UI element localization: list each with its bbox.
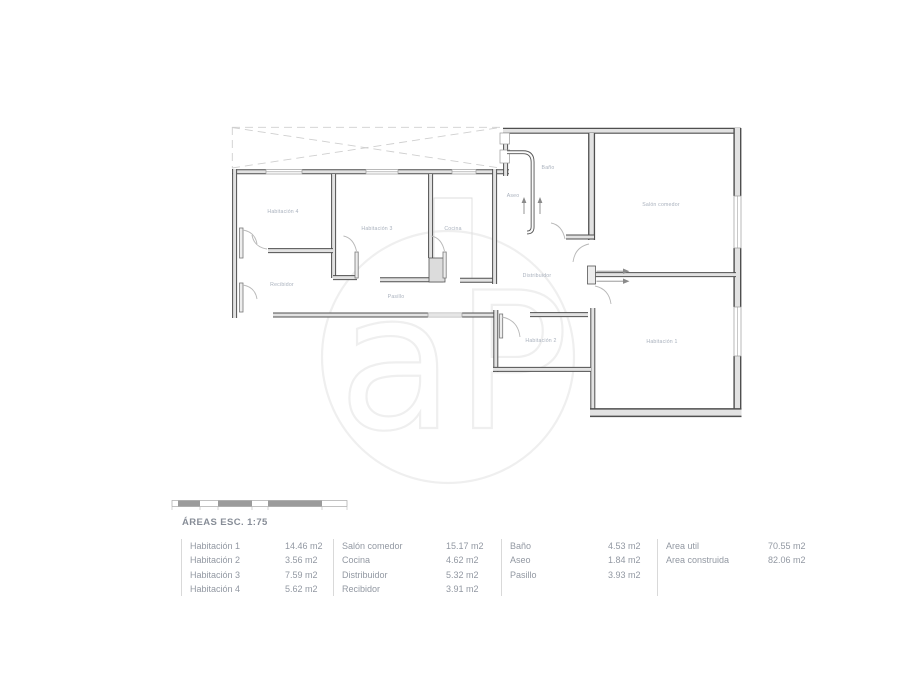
- legend-room-name: Recibidor: [342, 584, 446, 594]
- legend-group-2: Salón comedor15.17 m2Cocina4.62 m2Distri…: [333, 539, 501, 596]
- legend-room-area: 4.62 m2: [446, 555, 479, 565]
- legend-room-name: Habitación 4: [190, 584, 285, 594]
- legend-room-name: Area util: [666, 541, 768, 551]
- legend-room-area: 3.93 m2: [608, 570, 641, 580]
- legend-room-name: Aseo: [510, 555, 608, 565]
- room-label-habitacion-2: Habitación 2: [525, 338, 556, 344]
- legend-row: Baño4.53 m2: [510, 539, 657, 553]
- room-label-bano: Baño: [542, 165, 555, 171]
- legend-row: Area util70.55 m2: [666, 539, 819, 553]
- legend-row: Recibidor3.91 m2: [342, 582, 501, 596]
- legend-row: Habitación 45.62 m2: [190, 582, 333, 596]
- legend-room-name: Salón comedor: [342, 541, 446, 551]
- legend-room-name: Distribuidor: [342, 570, 446, 580]
- room-label-salon-comedor: Salón comedor: [642, 202, 680, 208]
- legend-row: Distribuidor5.32 m2: [342, 568, 501, 582]
- legend-room-name: Pasillo: [510, 570, 608, 580]
- watermark-text: aP: [338, 252, 569, 473]
- legend-group-1: Habitación 114.46 m2Habitación 23.56 m2H…: [181, 539, 333, 596]
- legend-room-area: 7.59 m2: [285, 570, 318, 580]
- room-label-habitacion-4: Habitación 4: [267, 209, 298, 215]
- legend-room-name: Habitación 1: [190, 541, 285, 551]
- legend-row: Area construida82.06 m2: [666, 553, 819, 567]
- legend-room-area: 14.46 m2: [285, 541, 323, 551]
- room-label-recibidor: Recibidor: [270, 282, 294, 288]
- scale-bar: [172, 501, 347, 511]
- patio-dashed-outline: [232, 127, 500, 168]
- watermark: aP: [322, 231, 574, 483]
- legend-row: Aseo1.84 m2: [510, 553, 657, 567]
- room-label-habitacion-3: Habitación 3: [361, 226, 392, 232]
- legend-room-area: 4.53 m2: [608, 541, 641, 551]
- legend-group-3: Baño4.53 m2Aseo1.84 m2Pasillo3.93 m2: [501, 539, 657, 596]
- legend-room-name: Baño: [510, 541, 608, 551]
- legend-room-name: Cocina: [342, 555, 446, 565]
- room-label-distribuidor: Distribuidor: [523, 273, 552, 279]
- legend-room-name: Habitación 3: [190, 570, 285, 580]
- room-label-aseo: Aseo: [507, 193, 520, 199]
- legend-room-area: 70.55 m2: [768, 541, 806, 551]
- legend-title: ÁREAS ESC. 1:75: [182, 517, 819, 528]
- legend-room-area: 15.17 m2: [446, 541, 484, 551]
- areas-legend: ÁREAS ESC. 1:75 Habitación 114.46 m2Habi…: [182, 517, 819, 596]
- legend-room-name: Habitación 2: [190, 555, 285, 565]
- legend-room-area: 3.91 m2: [446, 584, 479, 594]
- floorplan-page: { "plan": { "watermark": "aP", "rooms": …: [0, 0, 914, 698]
- legend-room-area: 1.84 m2: [608, 555, 641, 565]
- legend-room-area: 82.06 m2: [768, 555, 806, 565]
- legend-groups: Habitación 114.46 m2Habitación 23.56 m2H…: [181, 539, 819, 596]
- legend-row: Cocina4.62 m2: [342, 553, 501, 567]
- legend-room-area: 5.62 m2: [285, 584, 318, 594]
- legend-row: Habitación 23.56 m2: [190, 553, 333, 567]
- room-label-cocina: Cocina: [444, 226, 461, 232]
- legend-row: Pasillo3.93 m2: [510, 568, 657, 582]
- legend-room-area: 3.56 m2: [285, 555, 318, 565]
- room-label-habitacion-1: Habitación 1: [646, 339, 677, 345]
- legend-row: Salón comedor15.17 m2: [342, 539, 501, 553]
- legend-room-area: 5.32 m2: [446, 570, 479, 580]
- legend-row: Habitación 37.59 m2: [190, 568, 333, 582]
- legend-room-name: Area construida: [666, 555, 768, 565]
- legend-row: Habitación 114.46 m2: [190, 539, 333, 553]
- legend-group-4: Area util70.55 m2Area construida82.06 m2: [657, 539, 819, 596]
- room-label-pasillo: Pasillo: [388, 294, 405, 300]
